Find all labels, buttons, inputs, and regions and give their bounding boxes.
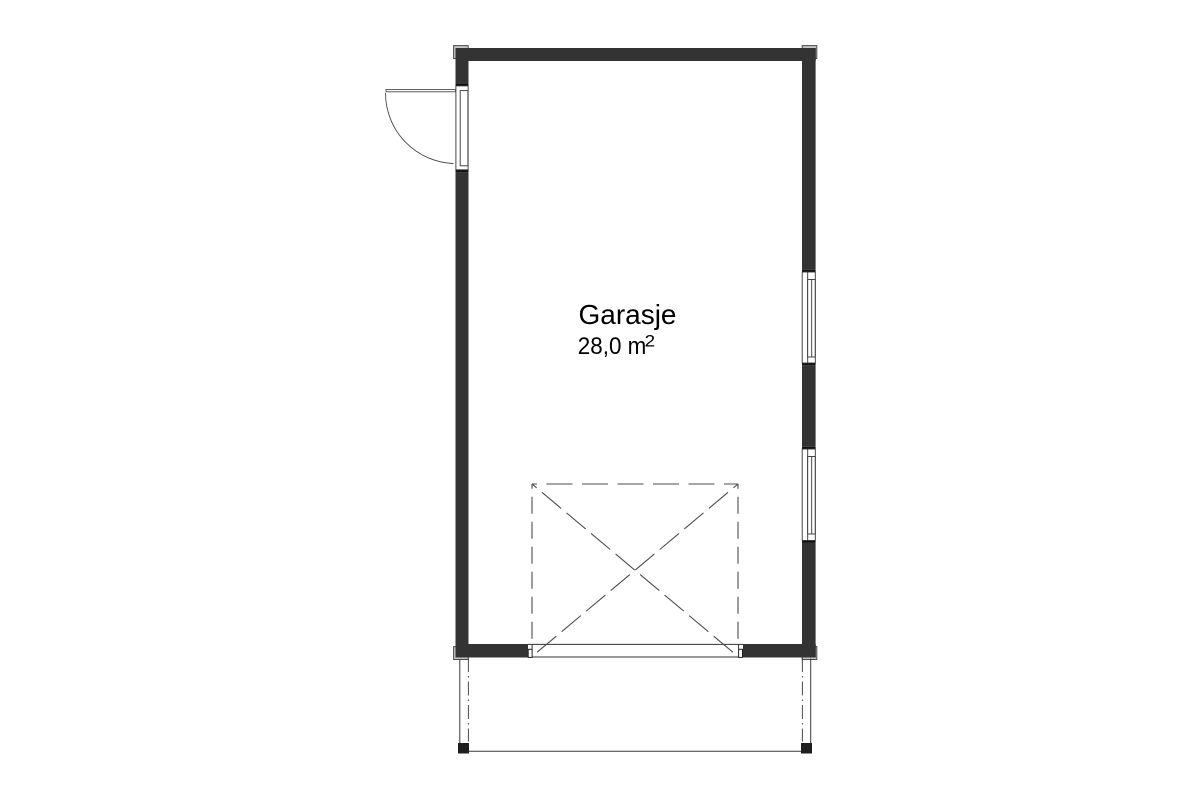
svg-text:2: 2 xyxy=(645,332,656,350)
svg-text:28,0 m: 28,0 m xyxy=(578,333,647,360)
svg-text:Garasje: Garasje xyxy=(579,299,677,330)
